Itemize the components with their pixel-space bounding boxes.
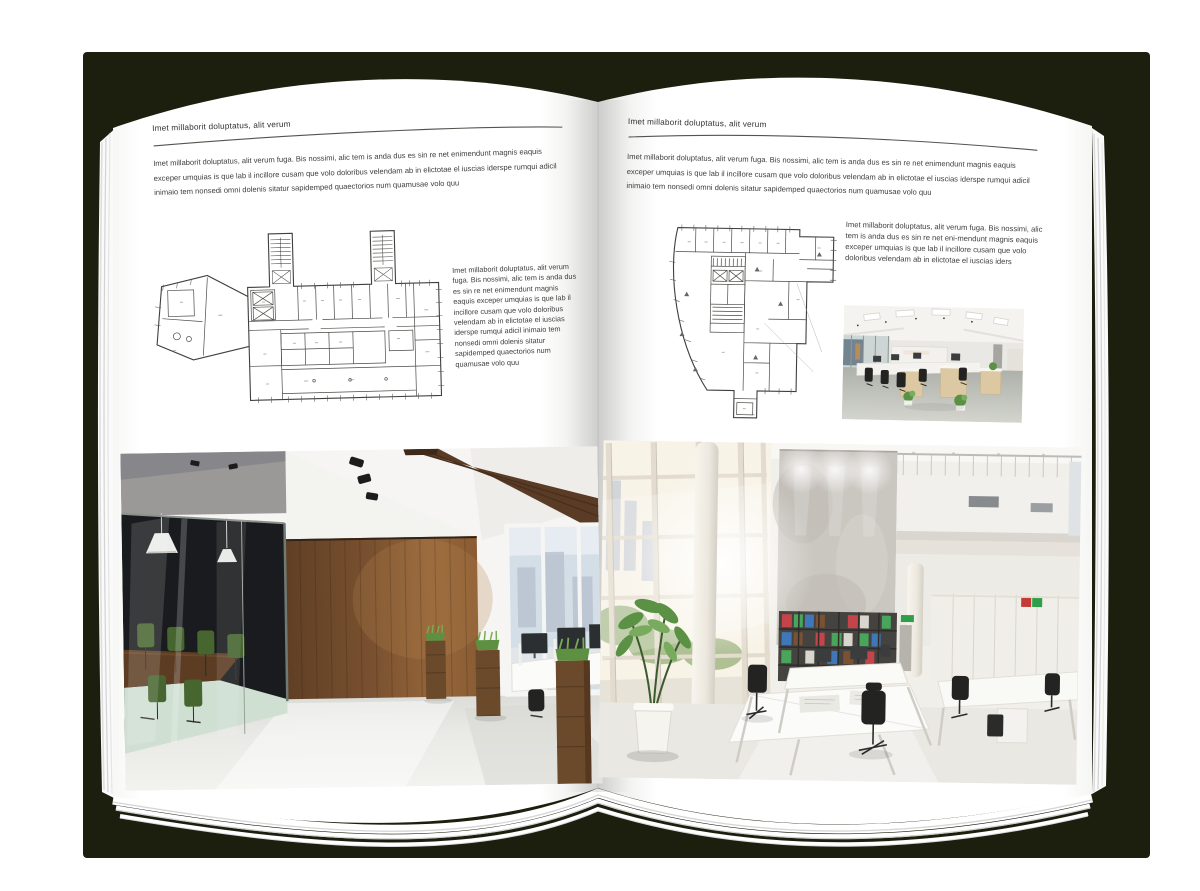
- left-plan-caption: Imet millaborit doluptatus, alit verum f…: [452, 262, 582, 370]
- right-office-photo: [598, 440, 1081, 784]
- left-floor-plan: [150, 219, 451, 415]
- room-number-marks: [172, 296, 430, 387]
- left-office-photo: [120, 446, 602, 790]
- cabinets: [930, 593, 1079, 681]
- right-plan-caption: Imet millaborit doluptatus, alit verum f…: [845, 219, 1044, 268]
- window-ticks: [153, 272, 444, 405]
- small-office-photo: [842, 305, 1024, 423]
- right-page-content: Imet millaborit doluptatus, alit verum I…: [626, 117, 1038, 203]
- room-number-marks: [685, 242, 821, 410]
- plan-symbols: [679, 250, 822, 374]
- brochure-mockup: Imet millaborit doluptatus, alit verum I…: [0, 0, 1200, 891]
- meeting-room: [121, 511, 288, 754]
- right-intro-paragraph: Imet millaborit doluptatus, alit verum f…: [626, 150, 1037, 203]
- right-floor-plan: [644, 221, 839, 426]
- window-ticks: [667, 224, 837, 416]
- left-page-content: Imet millaborit doluptatus, alit verum I…: [152, 111, 566, 201]
